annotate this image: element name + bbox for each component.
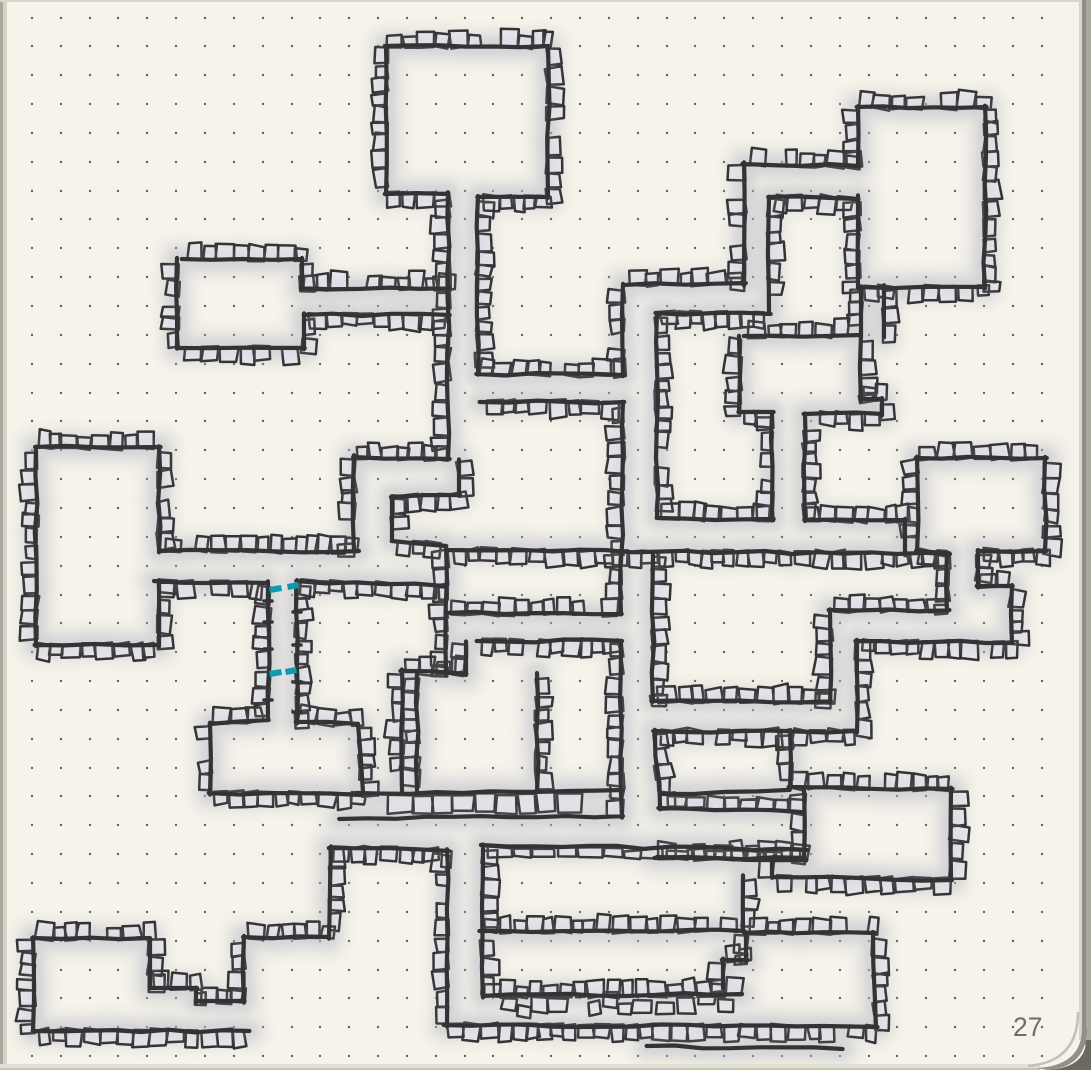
- svg-text:27: 27: [1013, 1012, 1042, 1042]
